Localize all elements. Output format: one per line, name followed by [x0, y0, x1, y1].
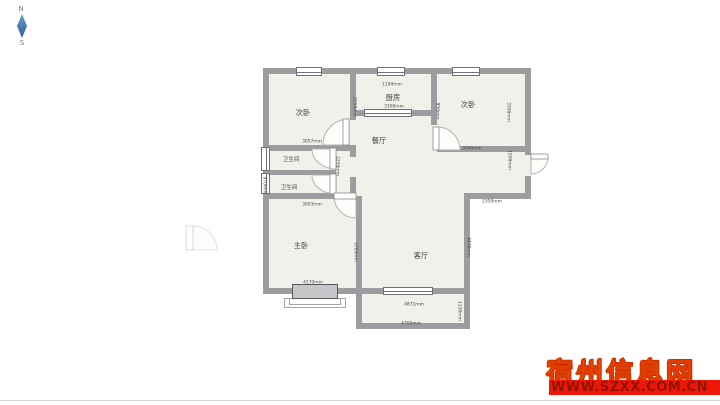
dim-bed-left-height: 2550mm: [353, 97, 358, 117]
dim-bed-right-left-wall: 950mm: [436, 103, 441, 120]
dim-balcony-width: 4700mm: [401, 321, 421, 326]
dim-bed-right-width: 3040mm: [462, 146, 482, 151]
dim-master-top-width: 3903mm: [302, 202, 322, 207]
dim-entry-width: 2350mm: [482, 199, 502, 204]
room-label-kitchen: 厨房: [386, 92, 400, 102]
dim-kitchen-window: 1194mm: [382, 82, 402, 87]
dim-master-bottom-width: 4170mm: [303, 280, 323, 285]
door-arc-detached: [193, 226, 217, 250]
door-leaf: [334, 193, 356, 199]
door-leaf: [433, 127, 439, 150]
room-label-bathroom-lower: 卫生间: [281, 183, 298, 191]
door-arc-entry: [531, 157, 548, 174]
dim-bed-left-width: 3057mm: [302, 139, 322, 144]
watermark-url-bar: WWW.SZXX.COM.CN: [549, 380, 720, 395]
dim-corridor-height: 2250mm: [336, 156, 341, 176]
door-symbols-layer: [0, 0, 720, 405]
door-leaf: [330, 174, 336, 194]
door-leaf: [531, 154, 548, 159]
door-leaf: [186, 226, 193, 250]
dim-living-height-left: 5703mm: [354, 242, 359, 262]
room-label-bedroom-right: 次卧: [461, 99, 475, 109]
dim-kitchen-width: 3300mm: [384, 104, 404, 109]
dim-living-width: 4871mm: [404, 302, 424, 307]
room-label-bathroom-upper: 卫生间: [283, 155, 300, 163]
dim-bath-lower-height: 970mm: [263, 177, 268, 194]
door-arc-bedroom-right: [437, 127, 460, 150]
room-label-dining: 餐厅: [372, 135, 386, 145]
dim-entry-wall: 1500mm: [508, 150, 513, 170]
room-label-living: 客厅: [414, 250, 428, 260]
dim-bed-right-height: 3300mm: [507, 102, 512, 122]
room-label-bedroom-left: 次卧: [296, 107, 310, 117]
dim-living-height-right: 4400mm: [467, 237, 472, 257]
floorplan-page: N S: [0, 0, 720, 405]
dim-balcony-height: 1230mm: [458, 301, 463, 321]
bottom-divider: [0, 400, 720, 401]
watermark-url: WWW.SZXX.COM.CN: [549, 380, 720, 395]
door-leaf: [343, 119, 349, 145]
room-label-master: 主卧: [294, 240, 308, 250]
